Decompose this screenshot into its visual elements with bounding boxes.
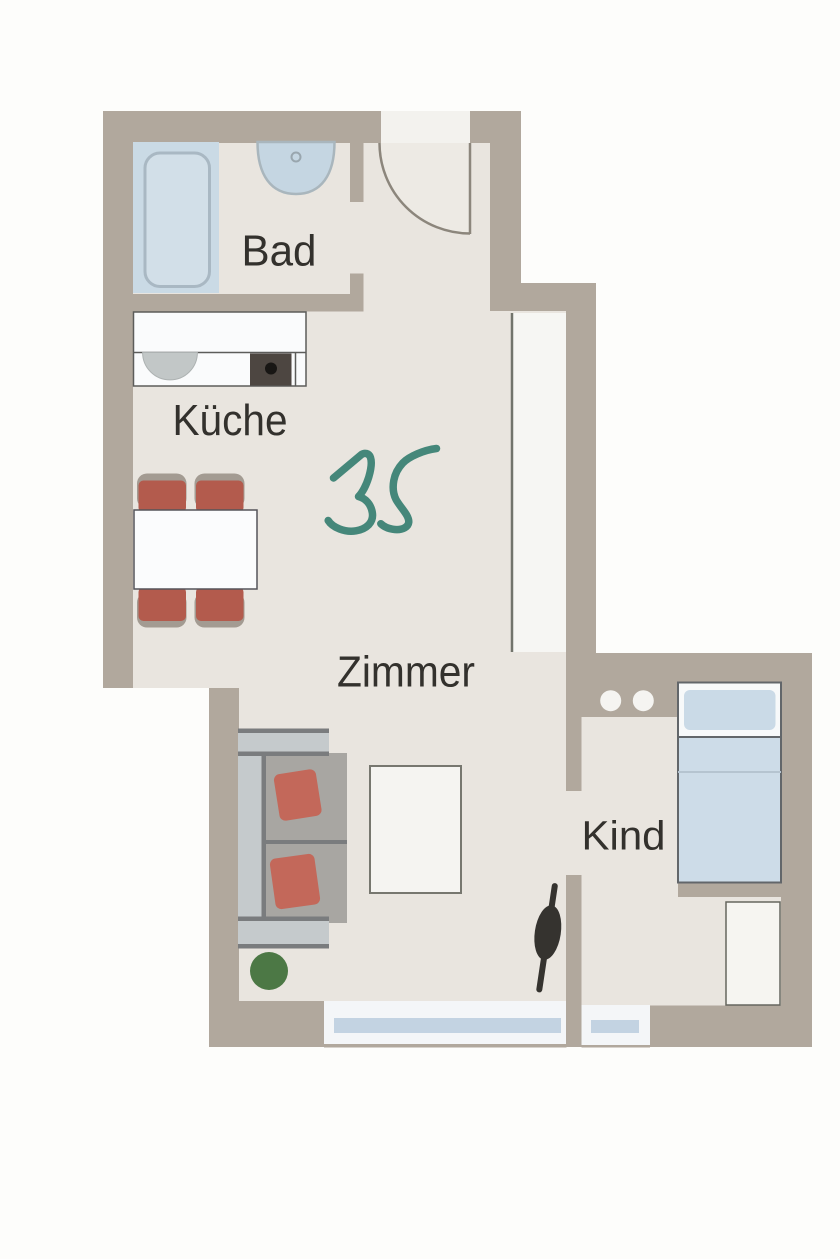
svg-text:Bad: Bad: [242, 228, 317, 276]
svg-text:Zimmer: Zimmer: [337, 649, 475, 697]
svg-text:Kind: Kind: [582, 813, 666, 859]
svg-text:Küche: Küche: [173, 397, 288, 445]
